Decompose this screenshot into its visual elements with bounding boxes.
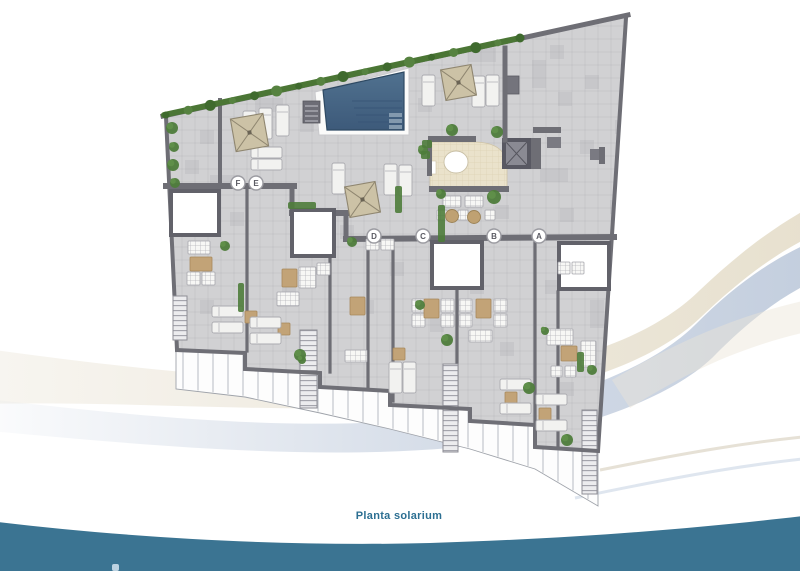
solarium-floorplan-figure: FEDCBA Planta solarium [0,0,800,571]
sun-lounger-icon [250,317,281,328]
plant-highlight [562,435,569,442]
rug-icon [561,346,577,361]
hedge-bush-icon [229,97,236,104]
plant-highlight [492,127,499,134]
table-icon [558,262,570,274]
wall-stub [599,147,605,164]
sun-lounger-icon [422,75,435,106]
stair-void-e [292,210,334,256]
hedge-bush-icon [163,112,170,119]
plant-highlight [436,189,442,195]
tile-patch [560,208,574,222]
wall-stub [533,127,561,133]
plant-highlight [442,335,449,342]
hedge-bush-icon [470,42,481,53]
planter-icon [421,151,430,159]
hedge-bush-icon [516,34,525,43]
tile-patch [532,60,546,88]
planter-icon [395,186,402,213]
table-icon [551,366,562,377]
stair-void-c [432,242,482,288]
sun-lounger-icon [332,163,345,194]
hedge-bush-icon [205,100,216,111]
hedge-bush-icon [184,106,193,115]
table-icon [187,272,200,285]
unit-label-C: C [416,229,430,243]
plant-highlight [295,350,302,357]
table-icon [202,272,215,285]
unit-label-B: B [487,229,501,243]
pergola-icon [345,182,381,218]
table-icon [458,210,468,220]
table-icon [459,314,472,327]
hedge-bush-icon [295,83,302,90]
pergola-icon [441,65,477,101]
logo-mark [112,564,119,571]
bar-counter-icon [444,151,468,173]
sun-lounger-icon [486,75,499,106]
plant-highlight [524,383,531,390]
sun-lounger-icon [250,333,281,344]
plant-highlight [298,356,302,360]
rug-icon [424,299,439,318]
sun-lounger-icon [276,105,289,136]
table-icon [299,267,316,288]
hedge-bush-icon [449,48,458,57]
plant-highlight [347,237,353,243]
stair-icon [173,296,187,340]
tile-patch [185,160,199,174]
bar-floor [430,142,507,189]
plant-highlight [587,365,593,371]
chair-icon [468,211,481,224]
tile-patch [590,300,604,328]
table-icon [443,196,461,207]
sun-lounger-icon [536,394,567,405]
table-icon [485,210,495,220]
rug-icon [350,297,365,315]
table-icon [345,350,367,362]
unit-label-E: E [249,176,263,190]
rug-icon [282,269,297,287]
sun-lounger-icon [251,159,282,170]
tile-patch [540,168,568,182]
plant-highlight [488,191,496,199]
unit-label-D: D [367,229,381,243]
hedge-bush-icon [316,77,325,86]
unit-label-text: E [253,179,259,188]
plant-highlight [415,300,421,306]
planter-icon [577,352,584,372]
sun-lounger-icon [403,362,416,393]
planter-icon [438,205,445,242]
table-icon [412,314,425,327]
unit-label-text: A [536,232,542,241]
plant-highlight [220,241,226,247]
table-icon [572,262,584,274]
tile-patch [495,205,509,219]
hedge-bush-icon [494,39,501,46]
unit-label-text: D [371,232,377,241]
pergola-icon [230,113,268,151]
unit-label-F: F [231,176,245,190]
equipment-block-icon [547,137,561,148]
table-icon [494,299,507,312]
swoosh-line-blue [575,458,800,498]
tile-patch [230,212,244,226]
chair-icon [446,210,459,223]
tile-patch [500,342,514,356]
table-icon [277,292,299,306]
table-icon [381,239,394,250]
sun-lounger-icon [212,322,243,333]
pool-ladder-icon [303,101,320,123]
rug-icon [476,299,491,318]
table-icon [547,329,573,345]
plant-highlight [169,142,175,148]
stair-icon [300,330,317,408]
tile-patch [558,92,572,106]
pool-steps-icon [389,113,402,129]
plant-highlight [170,178,176,184]
stair-void-f [171,191,219,235]
table-icon [188,241,210,254]
swoosh-line-beige [600,436,800,470]
unit-label-A: A [532,229,546,243]
unit-label-text: B [491,232,497,241]
planter-icon [238,283,244,312]
tile-patch [550,45,564,59]
sun-lounger-icon [536,420,567,431]
hedge-bush-icon [404,57,415,68]
rug-icon [505,392,517,404]
hedge-bush-icon [428,54,435,61]
sun-lounger-icon [389,362,402,393]
table-icon [565,366,576,377]
rug-icon [393,348,405,360]
plan-caption: Planta solarium [356,510,442,522]
hedge-bush-icon [271,85,282,96]
table-icon [441,314,454,327]
plant-highlight [168,160,175,167]
hedge-bush-icon [338,71,349,82]
plant-highlight [447,125,454,132]
table-icon [465,196,483,207]
unit-label-text: F [236,179,241,188]
footer-wave [0,515,800,571]
unit-label-text: C [420,232,426,241]
table-icon [469,330,492,342]
brochure-page: FEDCBA Planta solarium [0,0,800,571]
hedge-bush-icon [383,62,392,71]
sun-lounger-icon [500,403,531,414]
hedge-bush-icon [250,91,259,100]
bar-wall-top [428,136,476,142]
tile-patch [585,75,599,89]
plant-highlight [541,327,545,331]
rug-icon [190,257,212,271]
table-icon [494,314,507,327]
planter-icon [288,202,316,209]
table-icon [441,299,454,312]
tile-patch [200,130,214,144]
table-icon [459,299,472,312]
plant-highlight [167,123,174,130]
rug-icon [539,408,551,420]
table-icon [317,263,330,275]
planter-icon [422,140,432,148]
elevator-wall [531,138,541,169]
hedge-bush-icon [362,68,369,75]
footer-wave-shape [0,515,800,571]
